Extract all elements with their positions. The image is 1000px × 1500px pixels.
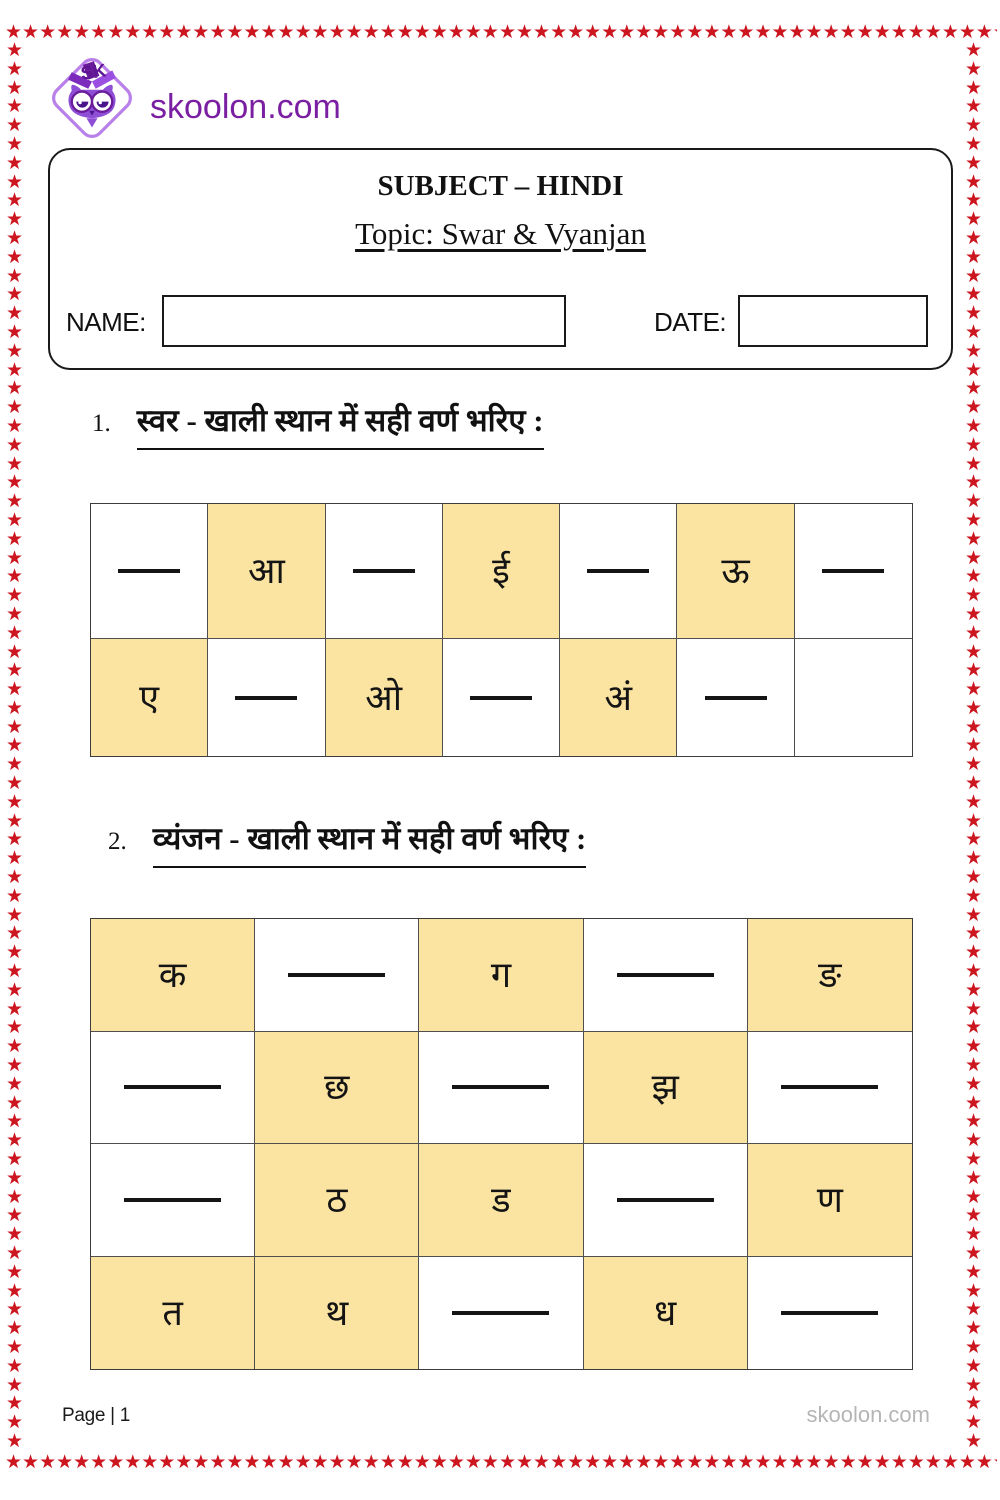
star-border-left: ★★★★★★★★★★★★★★★★★★★★★★★★★★★★★★★★★★★★★★★★… bbox=[6, 41, 27, 1451]
answer-blank-line bbox=[452, 1311, 549, 1315]
answer-blank-line bbox=[822, 569, 884, 573]
letter-cell: क bbox=[91, 919, 255, 1032]
section-2-heading: व्यंजन - खाली स्थान में सही वर्ण भरिए : bbox=[153, 820, 587, 868]
blank-cell[interactable] bbox=[443, 639, 560, 756]
star-border-bottom: ★★★★★★★★★★★★★★★★★★★★★★★★★★★★★★★★★★★★★★★★… bbox=[5, 1452, 997, 1473]
devanagari-letter: आ bbox=[248, 553, 285, 589]
answer-blank-line bbox=[617, 973, 714, 977]
devanagari-letter: ण bbox=[817, 1182, 843, 1218]
blank-cell[interactable] bbox=[748, 1032, 912, 1145]
name-label: NAME: bbox=[66, 307, 146, 338]
devanagari-letter: छ bbox=[324, 1069, 349, 1105]
header-box: SUBJECT – HINDI Topic: Swar & Vyanjan NA… bbox=[48, 148, 953, 370]
devanagari-letter: त bbox=[162, 1295, 183, 1331]
blank-cell[interactable] bbox=[419, 1257, 583, 1370]
star-border-right: ★★★★★★★★★★★★★★★★★★★★★★★★★★★★★★★★★★★★★★★★… bbox=[965, 41, 986, 1451]
blank-cell[interactable] bbox=[677, 639, 794, 756]
footer-page-number: Page | 1 bbox=[62, 1405, 130, 1427]
svg-text:SK: SK bbox=[79, 59, 108, 83]
empty-cell bbox=[795, 639, 912, 756]
letter-cell: ङ bbox=[748, 919, 912, 1032]
section-2-number: 2. bbox=[108, 828, 127, 856]
letter-cell: झ bbox=[584, 1032, 748, 1145]
blank-cell[interactable] bbox=[91, 1032, 255, 1145]
answer-blank-line bbox=[470, 696, 532, 700]
answer-blank-line bbox=[617, 1198, 714, 1202]
answer-blank-line bbox=[781, 1085, 878, 1089]
date-input-box[interactable] bbox=[738, 295, 928, 347]
devanagari-letter: थ bbox=[325, 1295, 348, 1331]
topic-title: Topic: Swar & Vyanjan bbox=[50, 216, 951, 252]
blank-cell[interactable] bbox=[560, 504, 677, 639]
devanagari-letter: ठ bbox=[326, 1182, 347, 1218]
letter-cell: छ bbox=[255, 1032, 419, 1145]
answer-blank-line bbox=[288, 973, 385, 977]
answer-blank-line bbox=[452, 1085, 549, 1089]
letter-cell: ठ bbox=[255, 1144, 419, 1257]
devanagari-letter: ई bbox=[492, 553, 510, 589]
letter-cell: ग bbox=[419, 919, 583, 1032]
letter-cell: ई bbox=[443, 504, 560, 639]
answer-blank-line bbox=[124, 1198, 221, 1202]
answer-blank-line bbox=[124, 1085, 221, 1089]
owl-diamond-logo-icon: SK bbox=[46, 48, 138, 153]
blank-cell[interactable] bbox=[208, 639, 325, 756]
footer-site-watermark: skoolon.com bbox=[806, 1402, 930, 1428]
brand-text: skoolon.com bbox=[150, 88, 341, 127]
answer-blank-line bbox=[587, 569, 649, 573]
blank-cell[interactable] bbox=[326, 504, 443, 639]
answer-blank-line bbox=[118, 569, 180, 573]
letter-cell: अं bbox=[560, 639, 677, 756]
blank-cell[interactable] bbox=[584, 1144, 748, 1257]
worksheet-page: ★★★★★★★★★★★★★★★★★★★★★★★★★★★★★★★★★★★★★★★★… bbox=[0, 0, 1000, 1500]
section-1-heading: स्वर - खाली स्थान में सही वर्ण भरिए : bbox=[137, 402, 544, 450]
subject-title: SUBJECT – HINDI bbox=[50, 170, 951, 203]
date-label: DATE: bbox=[654, 307, 726, 338]
devanagari-letter: क bbox=[159, 957, 187, 993]
letter-cell: ड bbox=[419, 1144, 583, 1257]
devanagari-letter: झ bbox=[652, 1069, 679, 1105]
devanagari-letter: ग bbox=[491, 957, 511, 993]
vyanjan-table: कगङछझठडणतथध bbox=[90, 918, 913, 1370]
devanagari-letter: ध bbox=[654, 1295, 676, 1331]
letter-cell: ऊ bbox=[677, 504, 794, 639]
letter-cell: ओ bbox=[326, 639, 443, 756]
section-1-heading-row: 1. स्वर - खाली स्थान में सही वर्ण भरिए : bbox=[92, 402, 544, 450]
logo-row: SK skoolon.com bbox=[46, 48, 341, 153]
answer-blank-line bbox=[781, 1311, 878, 1315]
devanagari-letter: ऊ bbox=[721, 553, 749, 589]
blank-cell[interactable] bbox=[795, 504, 912, 639]
devanagari-letter: ड bbox=[491, 1182, 510, 1218]
answer-blank-line bbox=[705, 696, 767, 700]
devanagari-letter: ए bbox=[139, 680, 159, 716]
letter-cell: त bbox=[91, 1257, 255, 1370]
blank-cell[interactable] bbox=[748, 1257, 912, 1370]
blank-cell[interactable] bbox=[584, 919, 748, 1032]
devanagari-letter: अं bbox=[605, 680, 633, 716]
blank-cell[interactable] bbox=[91, 504, 208, 639]
blank-cell[interactable] bbox=[419, 1032, 583, 1145]
letter-cell: ध bbox=[584, 1257, 748, 1370]
star-border-top: ★★★★★★★★★★★★★★★★★★★★★★★★★★★★★★★★★★★★★★★★… bbox=[5, 22, 997, 43]
answer-blank-line bbox=[235, 696, 297, 700]
section-1-number: 1. bbox=[92, 410, 111, 438]
name-input-box[interactable] bbox=[162, 295, 566, 347]
devanagari-letter: ङ bbox=[818, 957, 841, 993]
letter-cell: ए bbox=[91, 639, 208, 756]
blank-cell[interactable] bbox=[255, 919, 419, 1032]
blank-cell[interactable] bbox=[91, 1144, 255, 1257]
swar-table: आईऊएओअं bbox=[90, 503, 913, 757]
section-2-heading-row: 2. व्यंजन - खाली स्थान में सही वर्ण भरिए… bbox=[108, 820, 586, 868]
answer-blank-line bbox=[353, 569, 415, 573]
letter-cell: आ bbox=[208, 504, 325, 639]
letter-cell: ण bbox=[748, 1144, 912, 1257]
letter-cell: थ bbox=[255, 1257, 419, 1370]
devanagari-letter: ओ bbox=[365, 680, 402, 716]
